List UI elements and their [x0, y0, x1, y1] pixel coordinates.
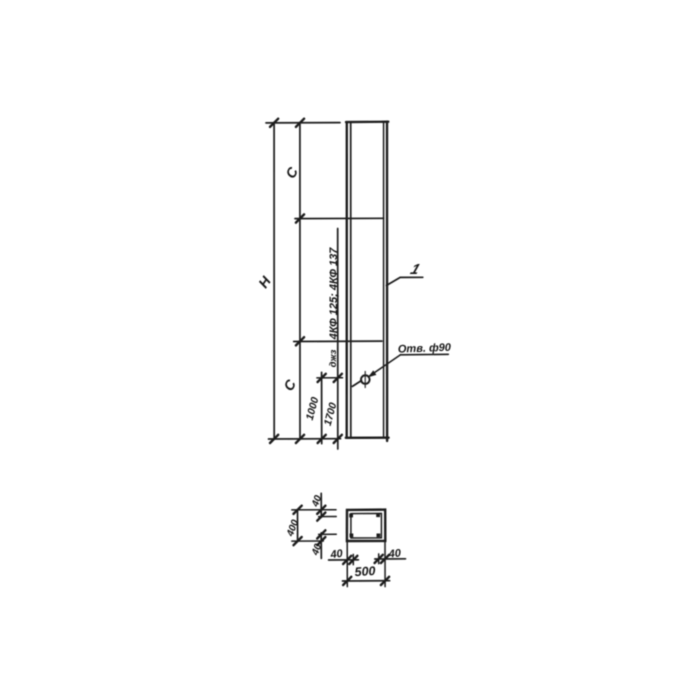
svg-text:джз: джз: [328, 349, 339, 367]
svg-text:1000: 1000: [304, 396, 322, 422]
svg-text:40: 40: [387, 547, 402, 560]
svg-text:40: 40: [310, 542, 325, 558]
svg-text:400: 400: [285, 518, 302, 539]
svg-text:4КФ 125; 4КФ 137: 4КФ 125; 4КФ 137: [328, 247, 340, 341]
svg-text:1: 1: [408, 261, 422, 277]
svg-text:40: 40: [310, 494, 325, 510]
svg-text:500: 500: [354, 564, 376, 579]
svg-text:40: 40: [329, 548, 345, 562]
svg-text:1700: 1700: [322, 401, 340, 427]
svg-text:Н: Н: [255, 273, 274, 291]
svg-text:С: С: [280, 376, 299, 393]
svg-text:С: С: [282, 164, 301, 181]
